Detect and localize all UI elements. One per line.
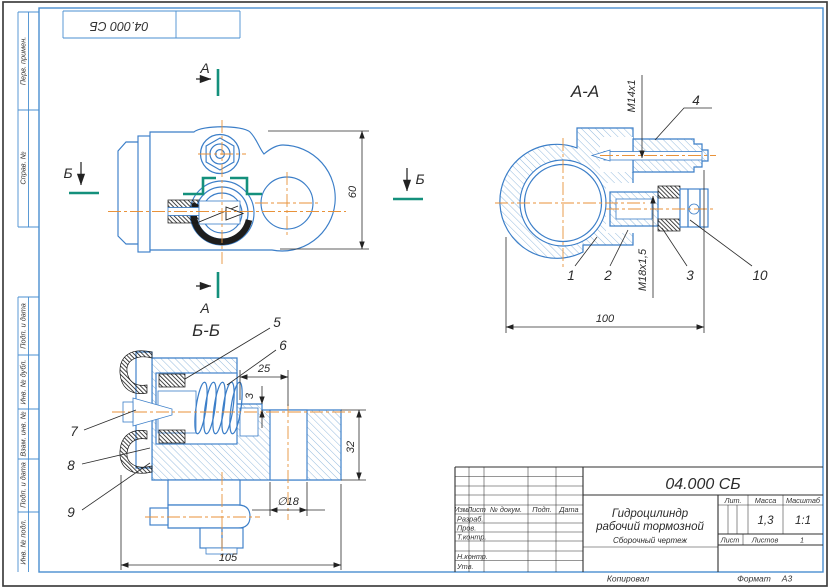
bb-cup-seal-bottom [159, 430, 185, 443]
titleblock-product-title-1: Гидроцилиндр [612, 508, 689, 520]
frame-col-perv-primen: Перв. примен. [18, 37, 27, 86]
aa-thread-m14-text: М14х1 [626, 79, 638, 112]
section-mark-b-left-label: Б [63, 165, 72, 181]
callout-10: 10 [752, 268, 768, 283]
drawing-sheet: Перв. примен. Справ. № Подп. и дата Инв.… [0, 0, 830, 588]
callout-9: 9 [67, 505, 75, 520]
corner-stamp-number: 04.000 СБ [90, 19, 149, 33]
callout-8: 8 [67, 458, 75, 473]
bb-vertical-hole [270, 410, 307, 480]
callout-4: 4 [692, 93, 700, 108]
titleblock-row-nkontr: Н.контр. [457, 552, 488, 561]
callout-1: 1 [567, 268, 575, 283]
titleblock-row-utv: Утв. [456, 562, 474, 571]
titleblock-listov-value: 1 [800, 536, 804, 545]
titleblock-masshtab-value: 1:1 [795, 515, 811, 527]
bb-dim-3-text: 3 [244, 392, 256, 399]
outer-border [3, 2, 827, 586]
footer-format-value: А3 [781, 574, 793, 584]
frame-col-inv-podl: Инв. № подл. [18, 519, 27, 564]
footer-kopiroval: Копировал [607, 574, 649, 584]
titleblock-lit-label: Лит. [723, 496, 741, 505]
titleblock-doc-number: 04.000 СБ [665, 476, 740, 493]
section-mark-a-bottom-label: А [199, 300, 209, 316]
titleblock-massa-label: Масса [755, 496, 777, 505]
bb-dim-d18-text: ∅18 [277, 496, 300, 508]
dim-60-text: 60 [347, 185, 359, 198]
titleblock-header-data: Дата [558, 505, 578, 514]
section-bb-title: Б-Б [192, 321, 220, 340]
callout-3: 3 [686, 268, 694, 283]
frame-col-podp-data-1: Подп. и дата [18, 303, 27, 349]
titleblock-row-prov: Пров. [457, 524, 476, 533]
titleblock-product-title-2: рабочий тормозной [595, 521, 704, 533]
callout-7: 7 [70, 424, 78, 439]
aa-thread-m18-text: М18х1,5 [637, 248, 649, 291]
callout-5: 5 [273, 315, 281, 330]
mounting-flange [138, 136, 150, 252]
section-mark-b-right-label: Б [415, 171, 424, 187]
aa-dim-100-text: 100 [596, 313, 615, 325]
aa-seal-ring-bottom [658, 219, 680, 231]
bb-dim-105-text: 105 [219, 552, 238, 564]
titleblock-row-razrab: Разраб. [457, 515, 483, 524]
titleblock-row-tkontr: Т.контр. [457, 533, 486, 542]
frame-col-inv-dubl: Инв. № дубл. [18, 360, 27, 405]
titleblock-masshtab-label: Масштаб [786, 496, 821, 505]
titleblock-listov-label: Листов [751, 536, 779, 545]
callout-6: 6 [279, 338, 287, 353]
frame-col-vzam-inv: Взам. инв. № [18, 411, 27, 456]
titleblock-header-doc: № докум. [490, 505, 522, 514]
section-aa-title: А-А [570, 82, 599, 101]
bb-dim-32-text: 32 [345, 441, 357, 453]
footer-format-label: Формат [737, 574, 771, 584]
titleblock-list-label: Лист [720, 536, 740, 545]
titleblock-doc-type: Сборочный чертеж [613, 536, 687, 545]
frame-col-sprav-no: Справ. № [18, 151, 27, 184]
bb-cup-seal-top [159, 374, 185, 387]
aa-seal-ring-top [658, 186, 680, 198]
titleblock-header-list: Лист [466, 505, 486, 514]
boot-cap-outline [118, 142, 139, 244]
drawing-canvas: Перв. примен. Справ. № Подп. и дата Инв.… [0, 0, 830, 588]
section-mark-a-top-label: А [199, 60, 209, 76]
bb-dim-25-text: 25 [257, 363, 271, 375]
titleblock-massa-value: 1,3 [758, 515, 775, 527]
inlet-stub-wall-top [168, 200, 199, 208]
titleblock-header-podp: Подп. [532, 505, 551, 514]
inlet-stub-wall-bottom [168, 216, 199, 224]
frame-col-podp-data-2: Подп. и дата [18, 462, 27, 508]
callout-2: 2 [603, 268, 612, 283]
